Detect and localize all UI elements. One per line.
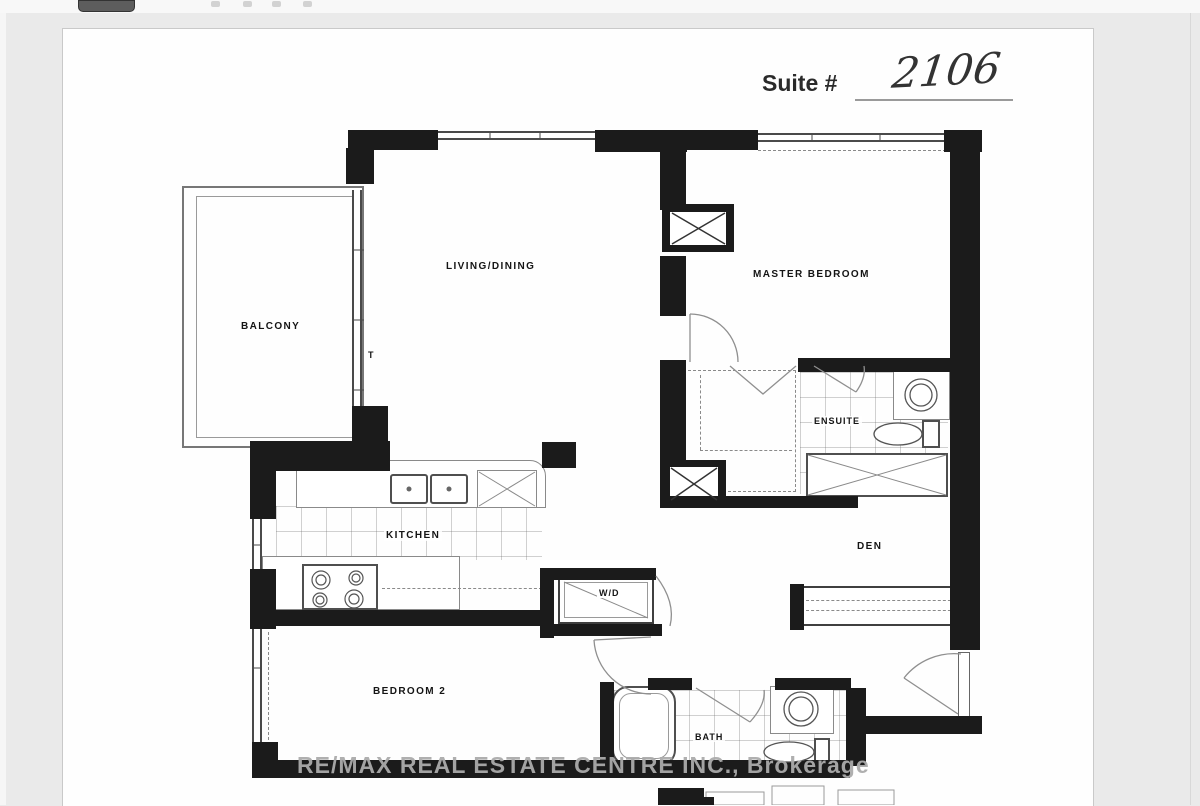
suite-number-handwritten: 2106 xyxy=(890,43,1004,98)
shaft-x-marker xyxy=(671,213,725,500)
room-label-washer-dryer: W/D xyxy=(597,588,622,598)
toolbar-glyph-fragment xyxy=(243,1,252,7)
ensuite-sink xyxy=(905,379,937,411)
suite-label: Suite # xyxy=(762,70,837,97)
room-label-ensuite: ENSUITE xyxy=(812,416,862,426)
toolbar-fragment xyxy=(0,0,1200,13)
room-label-living-dining: LIVING/DINING xyxy=(446,261,535,272)
screenshot-root: { "header": { "suite_label": "Suite #", … xyxy=(0,0,1200,805)
tub-x-marker xyxy=(808,455,946,495)
door-arc xyxy=(594,314,961,722)
ensuite-toilet xyxy=(874,423,922,445)
toolbar-glyph-fragment xyxy=(272,1,281,7)
window-ticks xyxy=(252,131,880,668)
room-label-balcony: BALCONY xyxy=(241,321,300,332)
toolbar-button[interactable] xyxy=(78,0,135,12)
fixture-overlay xyxy=(0,0,1200,805)
stove-burners xyxy=(312,571,363,608)
room-label-bedroom2: BEDROOM 2 xyxy=(373,686,446,697)
room-label-den: DEN xyxy=(857,541,882,552)
toolbar-glyph-fragment xyxy=(303,1,312,7)
thermostat-mark: T xyxy=(368,350,374,360)
suite-number-underline xyxy=(855,99,1013,101)
brokerage-watermark: RE/MAX REAL ESTATE CENTRE INC., Brokerag… xyxy=(297,752,870,779)
room-label-master-bedroom: MASTER BEDROOM xyxy=(753,269,870,280)
sink-drains xyxy=(407,487,452,492)
toolbar-glyph-fragment xyxy=(211,1,220,7)
room-label-bath: BATH xyxy=(693,732,725,742)
fridge-x-marker xyxy=(479,472,535,506)
keyplan-fragment xyxy=(658,786,894,805)
room-label-kitchen: KITCHEN xyxy=(384,530,442,541)
bath-sink xyxy=(784,692,818,726)
